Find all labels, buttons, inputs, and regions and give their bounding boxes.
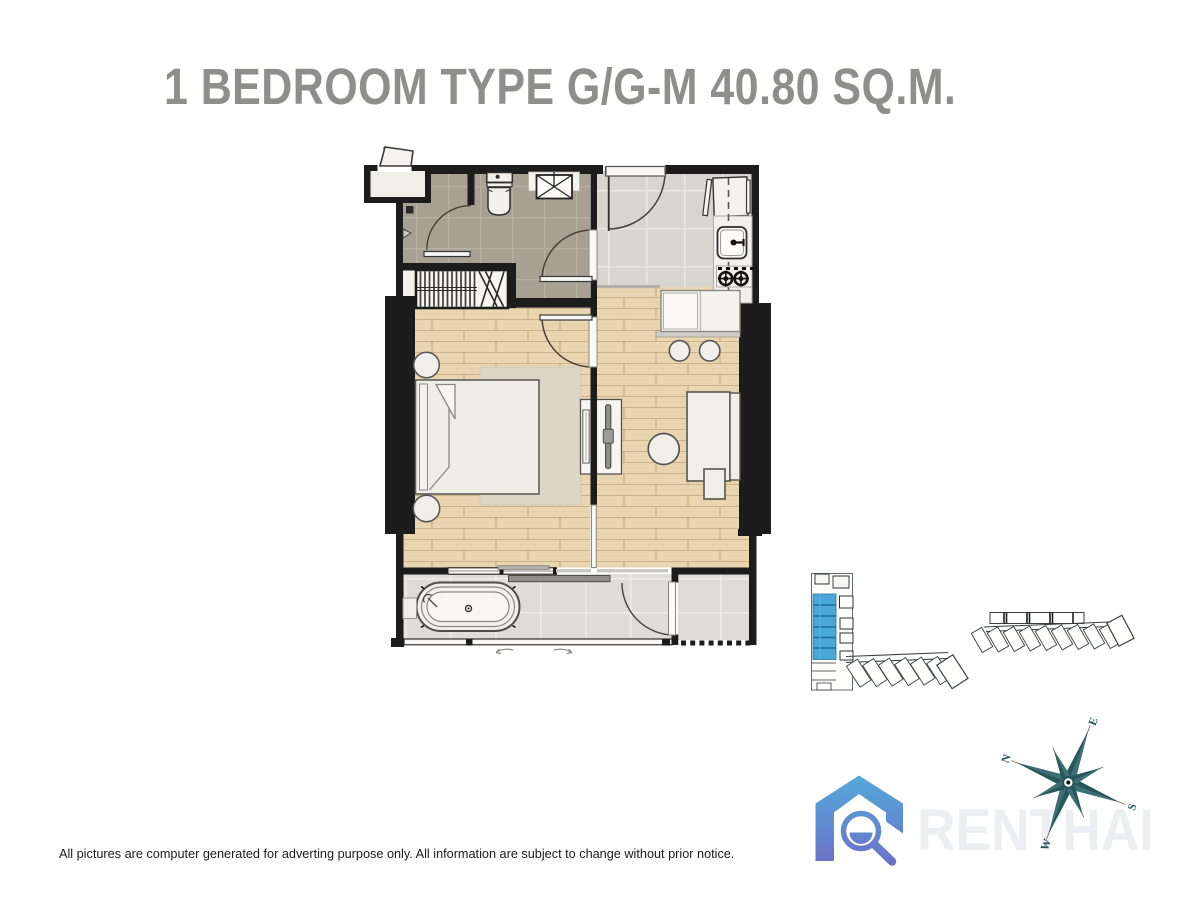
svg-text:N: N: [1000, 752, 1014, 765]
svg-text:W: W: [1039, 837, 1055, 852]
svg-text:E: E: [1087, 716, 1101, 728]
svg-text:S: S: [1126, 802, 1139, 812]
